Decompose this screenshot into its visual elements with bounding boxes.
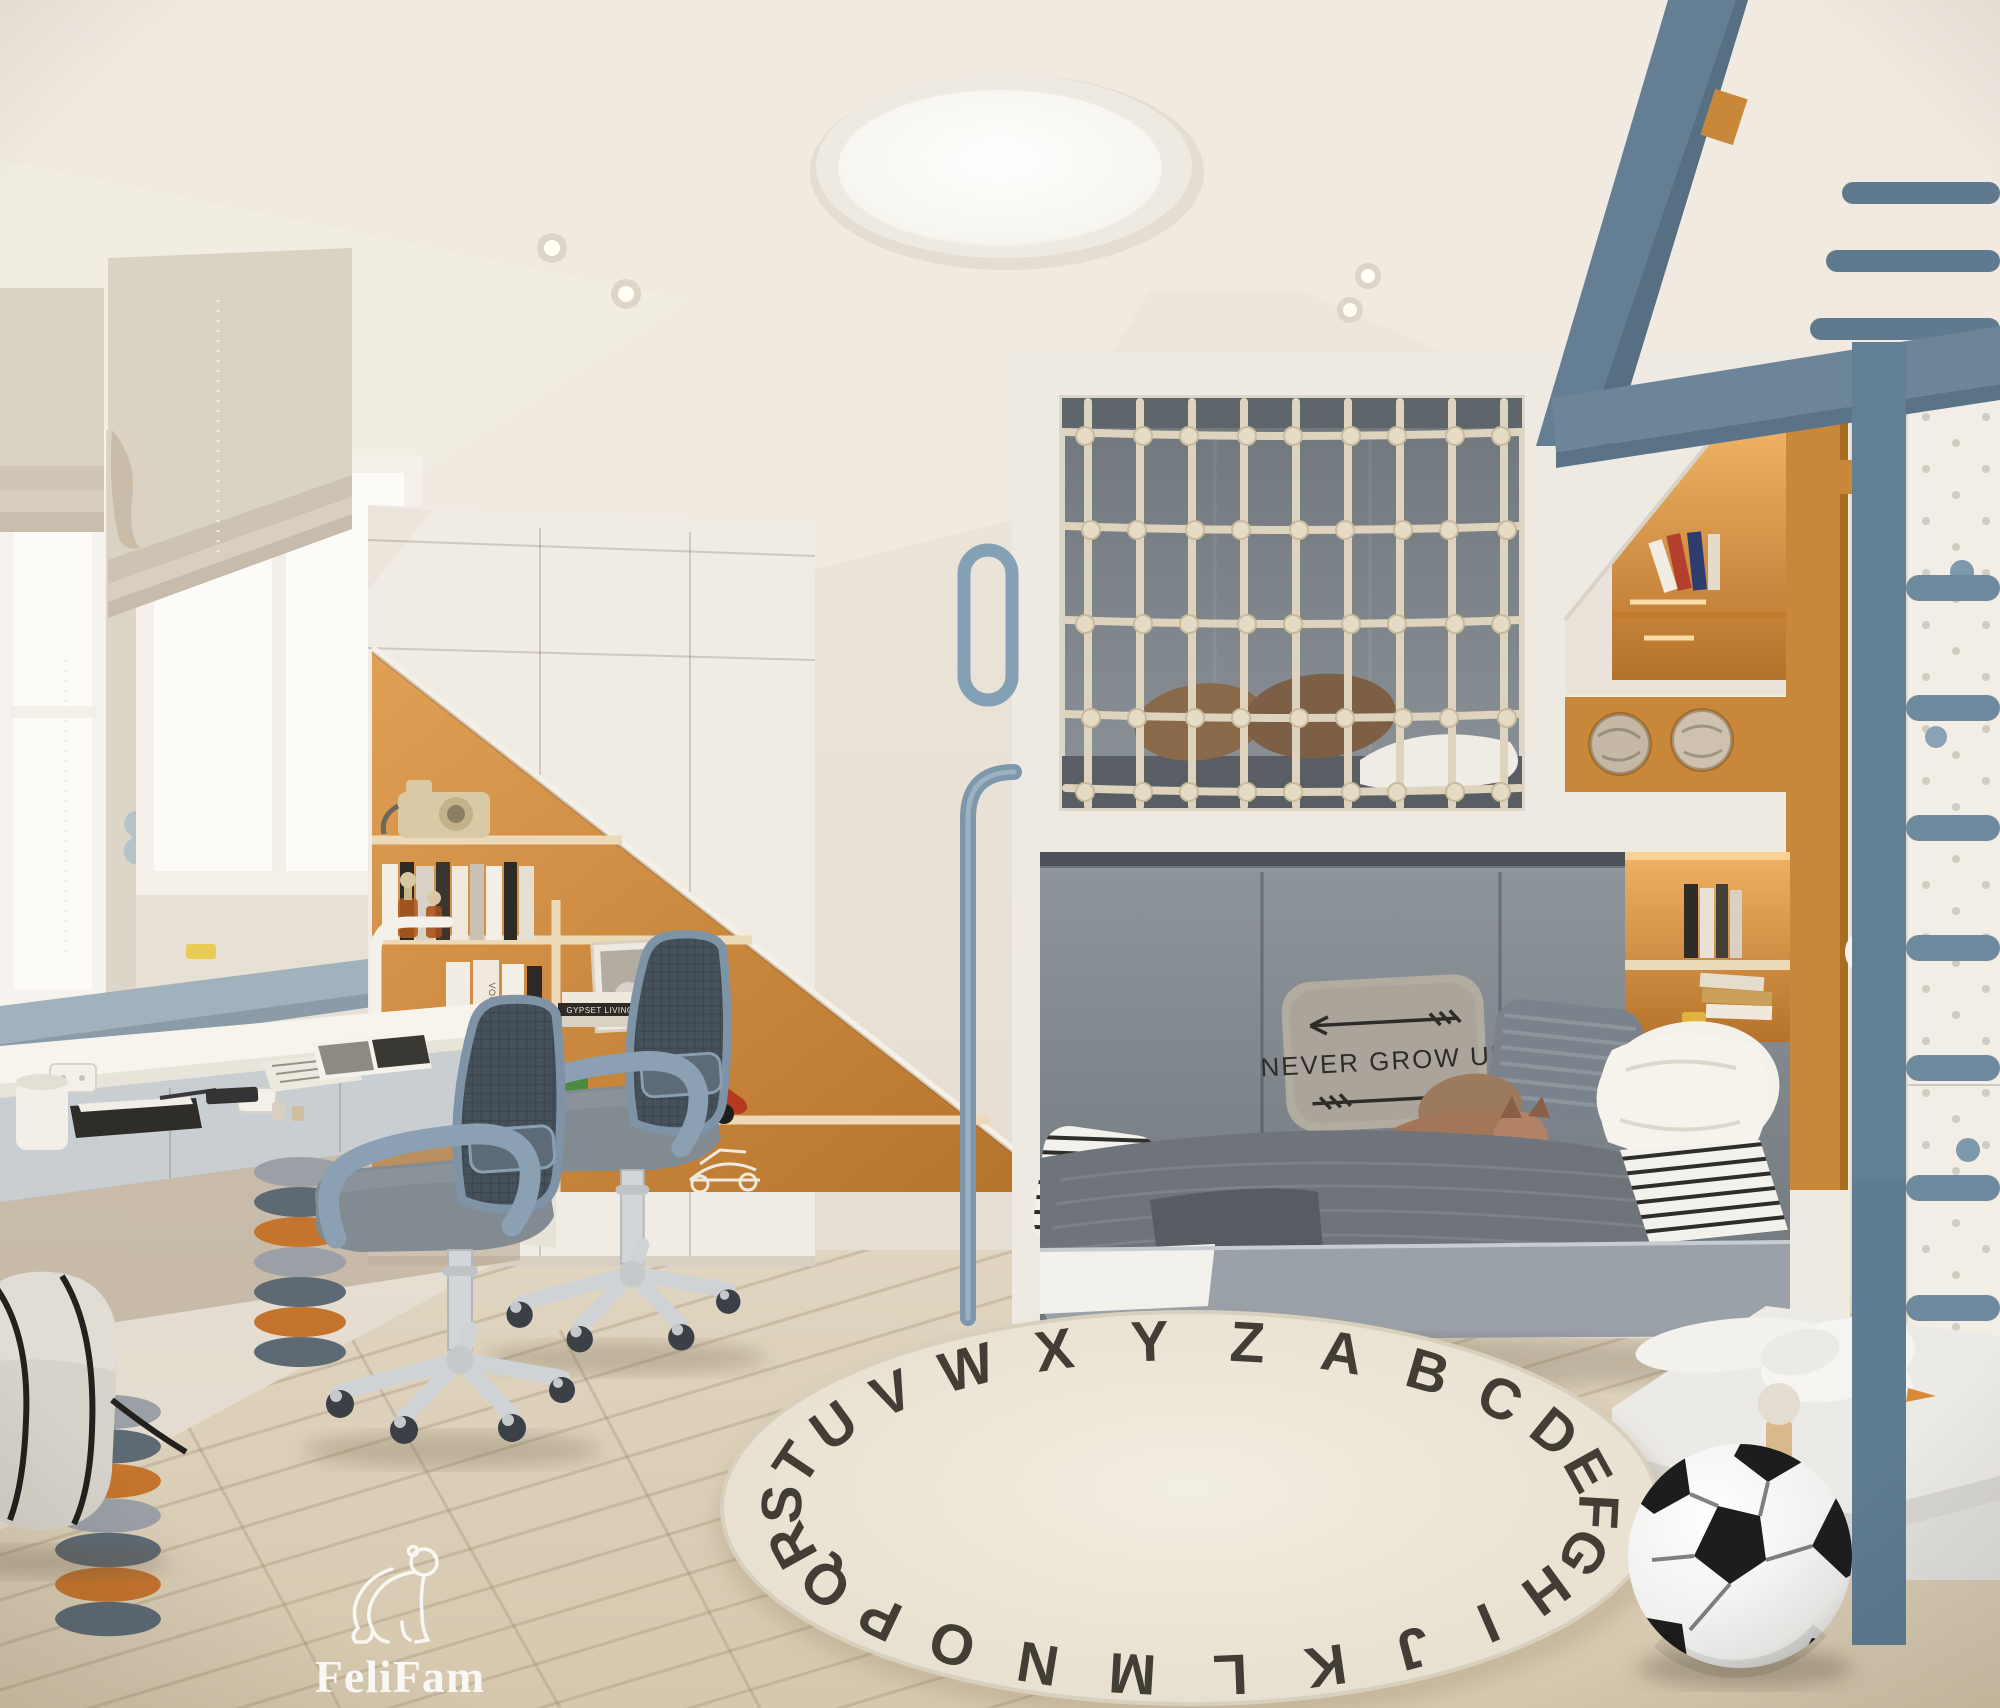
kids-bedroom-render: VOGUE GYPSET LIVING: [0, 0, 2000, 1708]
brand-name: FeliFam: [315, 1651, 486, 1702]
vignette-overlay: [0, 0, 2000, 1708]
